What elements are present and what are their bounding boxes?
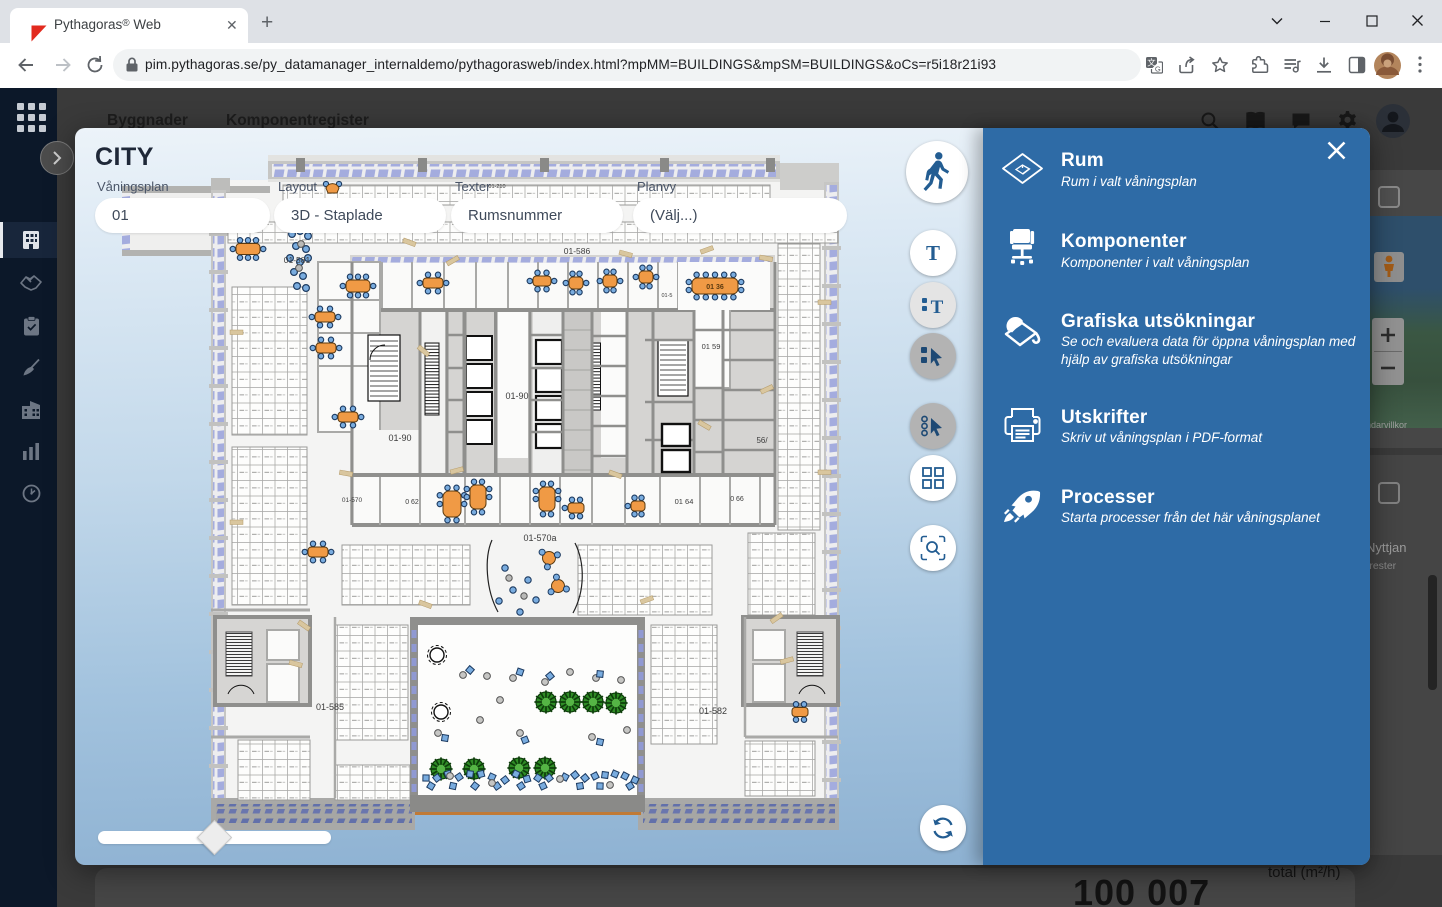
svg-text:01-586: 01-586 xyxy=(564,246,591,256)
svg-text:0 66: 0 66 xyxy=(730,496,744,503)
svg-text:01 36: 01 36 xyxy=(706,284,724,291)
svg-text:01-210: 01-210 xyxy=(488,184,505,190)
svg-text:01 64: 01 64 xyxy=(675,497,694,506)
svg-text:56/: 56/ xyxy=(756,436,768,445)
svg-text:01-90: 01-90 xyxy=(388,433,411,443)
svg-text:T: T xyxy=(926,242,940,264)
svg-text:01 59: 01 59 xyxy=(702,342,721,351)
svg-text:01-585: 01-585 xyxy=(316,702,344,712)
svg-text:01-582: 01-582 xyxy=(699,706,727,716)
svg-text:T: T xyxy=(931,297,944,316)
svg-text:01-90: 01-90 xyxy=(505,391,528,401)
svg-text:01-581: 01-581 xyxy=(284,255,311,265)
svg-text:G: G xyxy=(1155,64,1161,73)
svg-text:01-5: 01-5 xyxy=(661,293,672,299)
svg-text:01-570: 01-570 xyxy=(342,497,363,504)
svg-text:0 62: 0 62 xyxy=(405,499,419,506)
svg-text:01-570a: 01-570a xyxy=(523,533,556,543)
